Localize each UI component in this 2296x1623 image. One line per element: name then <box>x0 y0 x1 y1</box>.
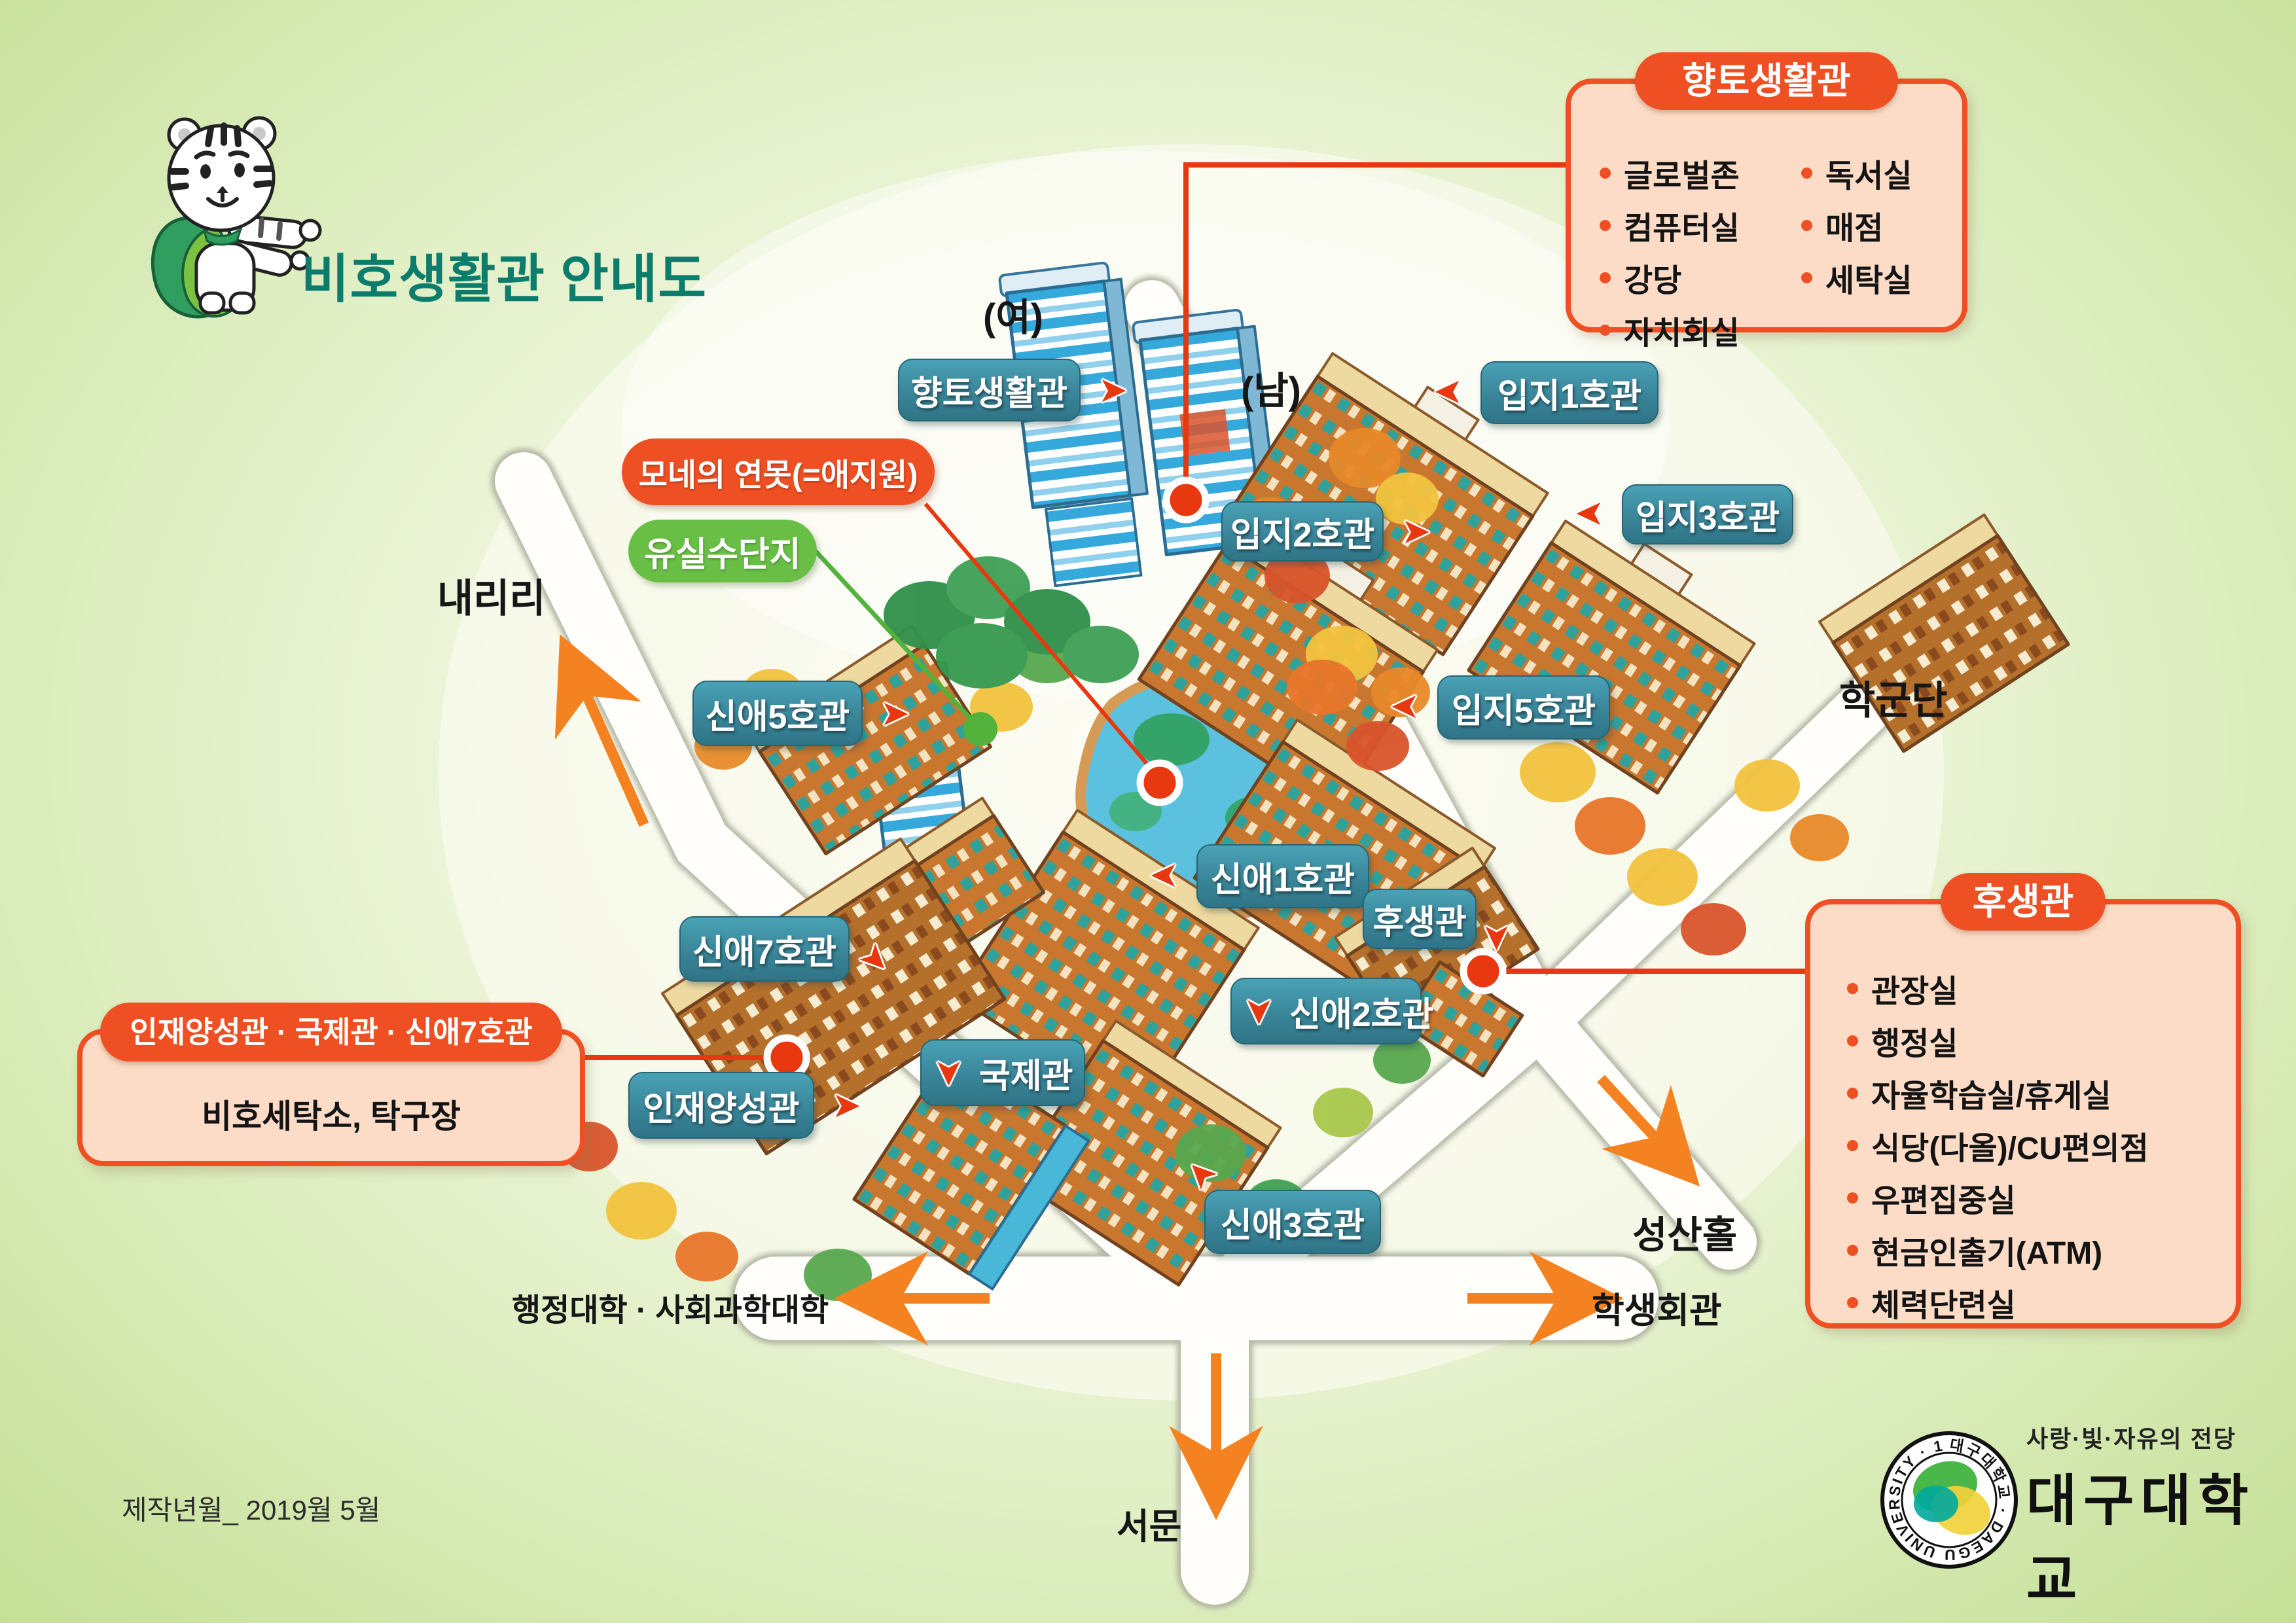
label-text: 후생관 <box>1372 895 1467 944</box>
injae-marker-dot <box>767 1038 806 1077</box>
facility-item: 매점 <box>1801 199 1912 251</box>
ipji5-label: 입지5호관➤ <box>1437 675 1610 740</box>
facility-item: 관장실 <box>1847 962 2149 1014</box>
facility-item: 자치회실 <box>1600 304 1740 356</box>
sinae1-label: 신애1호관➤ <box>1196 844 1369 908</box>
university-name-en: DAEGU UNIVERSITY <box>2026 1619 2296 1623</box>
pointer-arrow-icon: ➤ <box>1242 996 1278 1026</box>
sinae7-label: 신애7호관➤ <box>679 916 850 982</box>
label-text: 인재양성관 <box>643 1081 799 1130</box>
label-text: 입지2호관 <box>1230 507 1374 556</box>
pointer-arrow-icon: ➤ <box>832 1088 861 1123</box>
facility-item: 체력단련실 <box>1847 1276 2149 1329</box>
facility-item: 우편집중실 <box>1847 1171 2149 1224</box>
tiger-mascot-illustration <box>152 118 320 317</box>
label-text: 신애2호관 <box>1289 987 1433 1036</box>
admin-social-college-label: 행정대학 · 사회과학대학 <box>512 1284 829 1330</box>
campus-map-poster: 대구대학교 · DAEGU UNIVERSITY · 1956 비호생활관 안내… <box>0 0 2296 1623</box>
label-text: 국제관 <box>979 1048 1073 1097</box>
label-text: 입지1호관 <box>1498 368 1641 418</box>
ipji3-label: 입지3호관➤ <box>1622 484 1793 544</box>
label-text: 모네의 연못(=애지원) <box>639 449 918 495</box>
facility-item: 독서실 <box>1801 147 1912 199</box>
pointer-arrow-icon: ➤ <box>1098 372 1128 408</box>
husaeng-hall-label: 후생관➤ <box>1363 889 1477 949</box>
pointer-arrow-icon: ➤ <box>880 696 910 731</box>
label-text: 신애7호관 <box>692 925 836 974</box>
husaeng-marker-dot <box>1463 952 1503 991</box>
page-title: 비호생활관 안내도 <box>301 237 707 313</box>
facility-item: 자율학습실/휴게실 <box>1847 1067 2149 1119</box>
west-gate-label: 서문 <box>1117 1497 1181 1549</box>
injae-gukje-sinae7-callout: 인재양성관 · 국제관 · 신애7호관 비호세탁소, 탁구장 <box>77 1029 585 1166</box>
facility-item: 행정실 <box>1847 1014 2149 1067</box>
university-motto: 사랑·빛·자유의 전당 <box>2026 1420 2296 1454</box>
facility-item: 식당(다올)/CU편의점 <box>1847 1119 2149 1171</box>
pointer-arrow-icon: ➤ <box>1575 497 1604 532</box>
hyangto-hall-label: 향토생활관➤ <box>898 359 1081 421</box>
callout-body: 비호세탁소, 탁구장 <box>82 1090 580 1137</box>
ipji2-label: 입지2호관➤ <box>1221 501 1384 562</box>
student-union-label: 학생회관 <box>1592 1281 1722 1333</box>
facility-item: 강당 <box>1600 251 1740 304</box>
ipji1-label: 입지1호관➤ <box>1480 361 1659 424</box>
label-text: 입지3호관 <box>1636 490 1780 539</box>
university-name-kr: 대구대학교 <box>2026 1457 2296 1615</box>
pointer-arrow-icon: ➤ <box>1433 375 1463 410</box>
pointer-arrow-icon: ➤ <box>1390 690 1420 725</box>
pointer-arrow-icon: ➤ <box>1401 514 1431 549</box>
dorm-male-label: (남) <box>1241 360 1301 415</box>
sinae2-label: 신애2호관➤ <box>1230 978 1422 1044</box>
husaeng-hall-callout: 후생관 관장실 행정실 자율학습실/휴게실 식당(다올)/CU편의점 우편집중실… <box>1805 899 2241 1329</box>
production-date-note: 제작년월_ 2019월 5월 <box>122 1488 380 1528</box>
dorm-female-label: (여) <box>983 287 1043 342</box>
facility-item: 현금인출기(ATM) <box>1847 1224 2149 1276</box>
label-text: 신애1호관 <box>1211 852 1355 901</box>
label-text: 향토생활관 <box>911 366 1067 415</box>
hyangto-hall-callout: 향토생활관 글로벌존 컴퓨터실 강당 자치회실 독서실 매점 세탁실 <box>1566 79 1967 332</box>
label-text: 입지5호관 <box>1452 683 1596 732</box>
naeriri-label: 내리리 <box>437 567 546 624</box>
callout-title: 후생관 <box>1941 873 2106 931</box>
facility-item: 세탁실 <box>1801 251 1912 304</box>
pointer-arrow-icon: ➤ <box>1149 859 1179 894</box>
label-text: 신애5호관 <box>706 689 850 738</box>
seongsan-hall-label: 성산홀 <box>1632 1204 1737 1259</box>
sinae5-label: 신애5호관➤ <box>692 681 863 746</box>
callout-title: 향토생활관 <box>1635 52 1898 110</box>
sinae3-label: 신애3호관➤ <box>1204 1190 1381 1254</box>
pointer-arrow-icon: ➤ <box>932 1058 967 1087</box>
label-text: 유실수단지 <box>644 527 800 576</box>
callout-title: 인재양성관 · 국제관 · 신애7호관 <box>100 1003 562 1061</box>
gukje-hall-label: 국제관➤ <box>920 1039 1085 1106</box>
fruit-grove-marker-dot <box>963 712 997 746</box>
university-logo-block: 사랑·빛·자유의 전당 대구대학교 DAEGU UNIVERSITY <box>2026 1420 2296 1623</box>
facility-item: 컴퓨터실 <box>1600 199 1740 251</box>
facility-item: 글로벌존 <box>1600 147 1740 199</box>
hakgundan-label: 학군단 <box>1839 669 1948 726</box>
hyangto-marker-dot <box>1166 480 1206 520</box>
monet-pond-label: 모네의 연못(=애지원) <box>622 438 935 505</box>
fruit-tree-area-label: 유실수단지 <box>628 520 817 582</box>
injae-hall-label: 인재양성관➤ <box>628 1072 814 1139</box>
label-text: 신애3호관 <box>1221 1198 1365 1247</box>
monet-marker-dot <box>1140 763 1179 802</box>
pointer-arrow-icon: ➤ <box>1479 923 1515 952</box>
